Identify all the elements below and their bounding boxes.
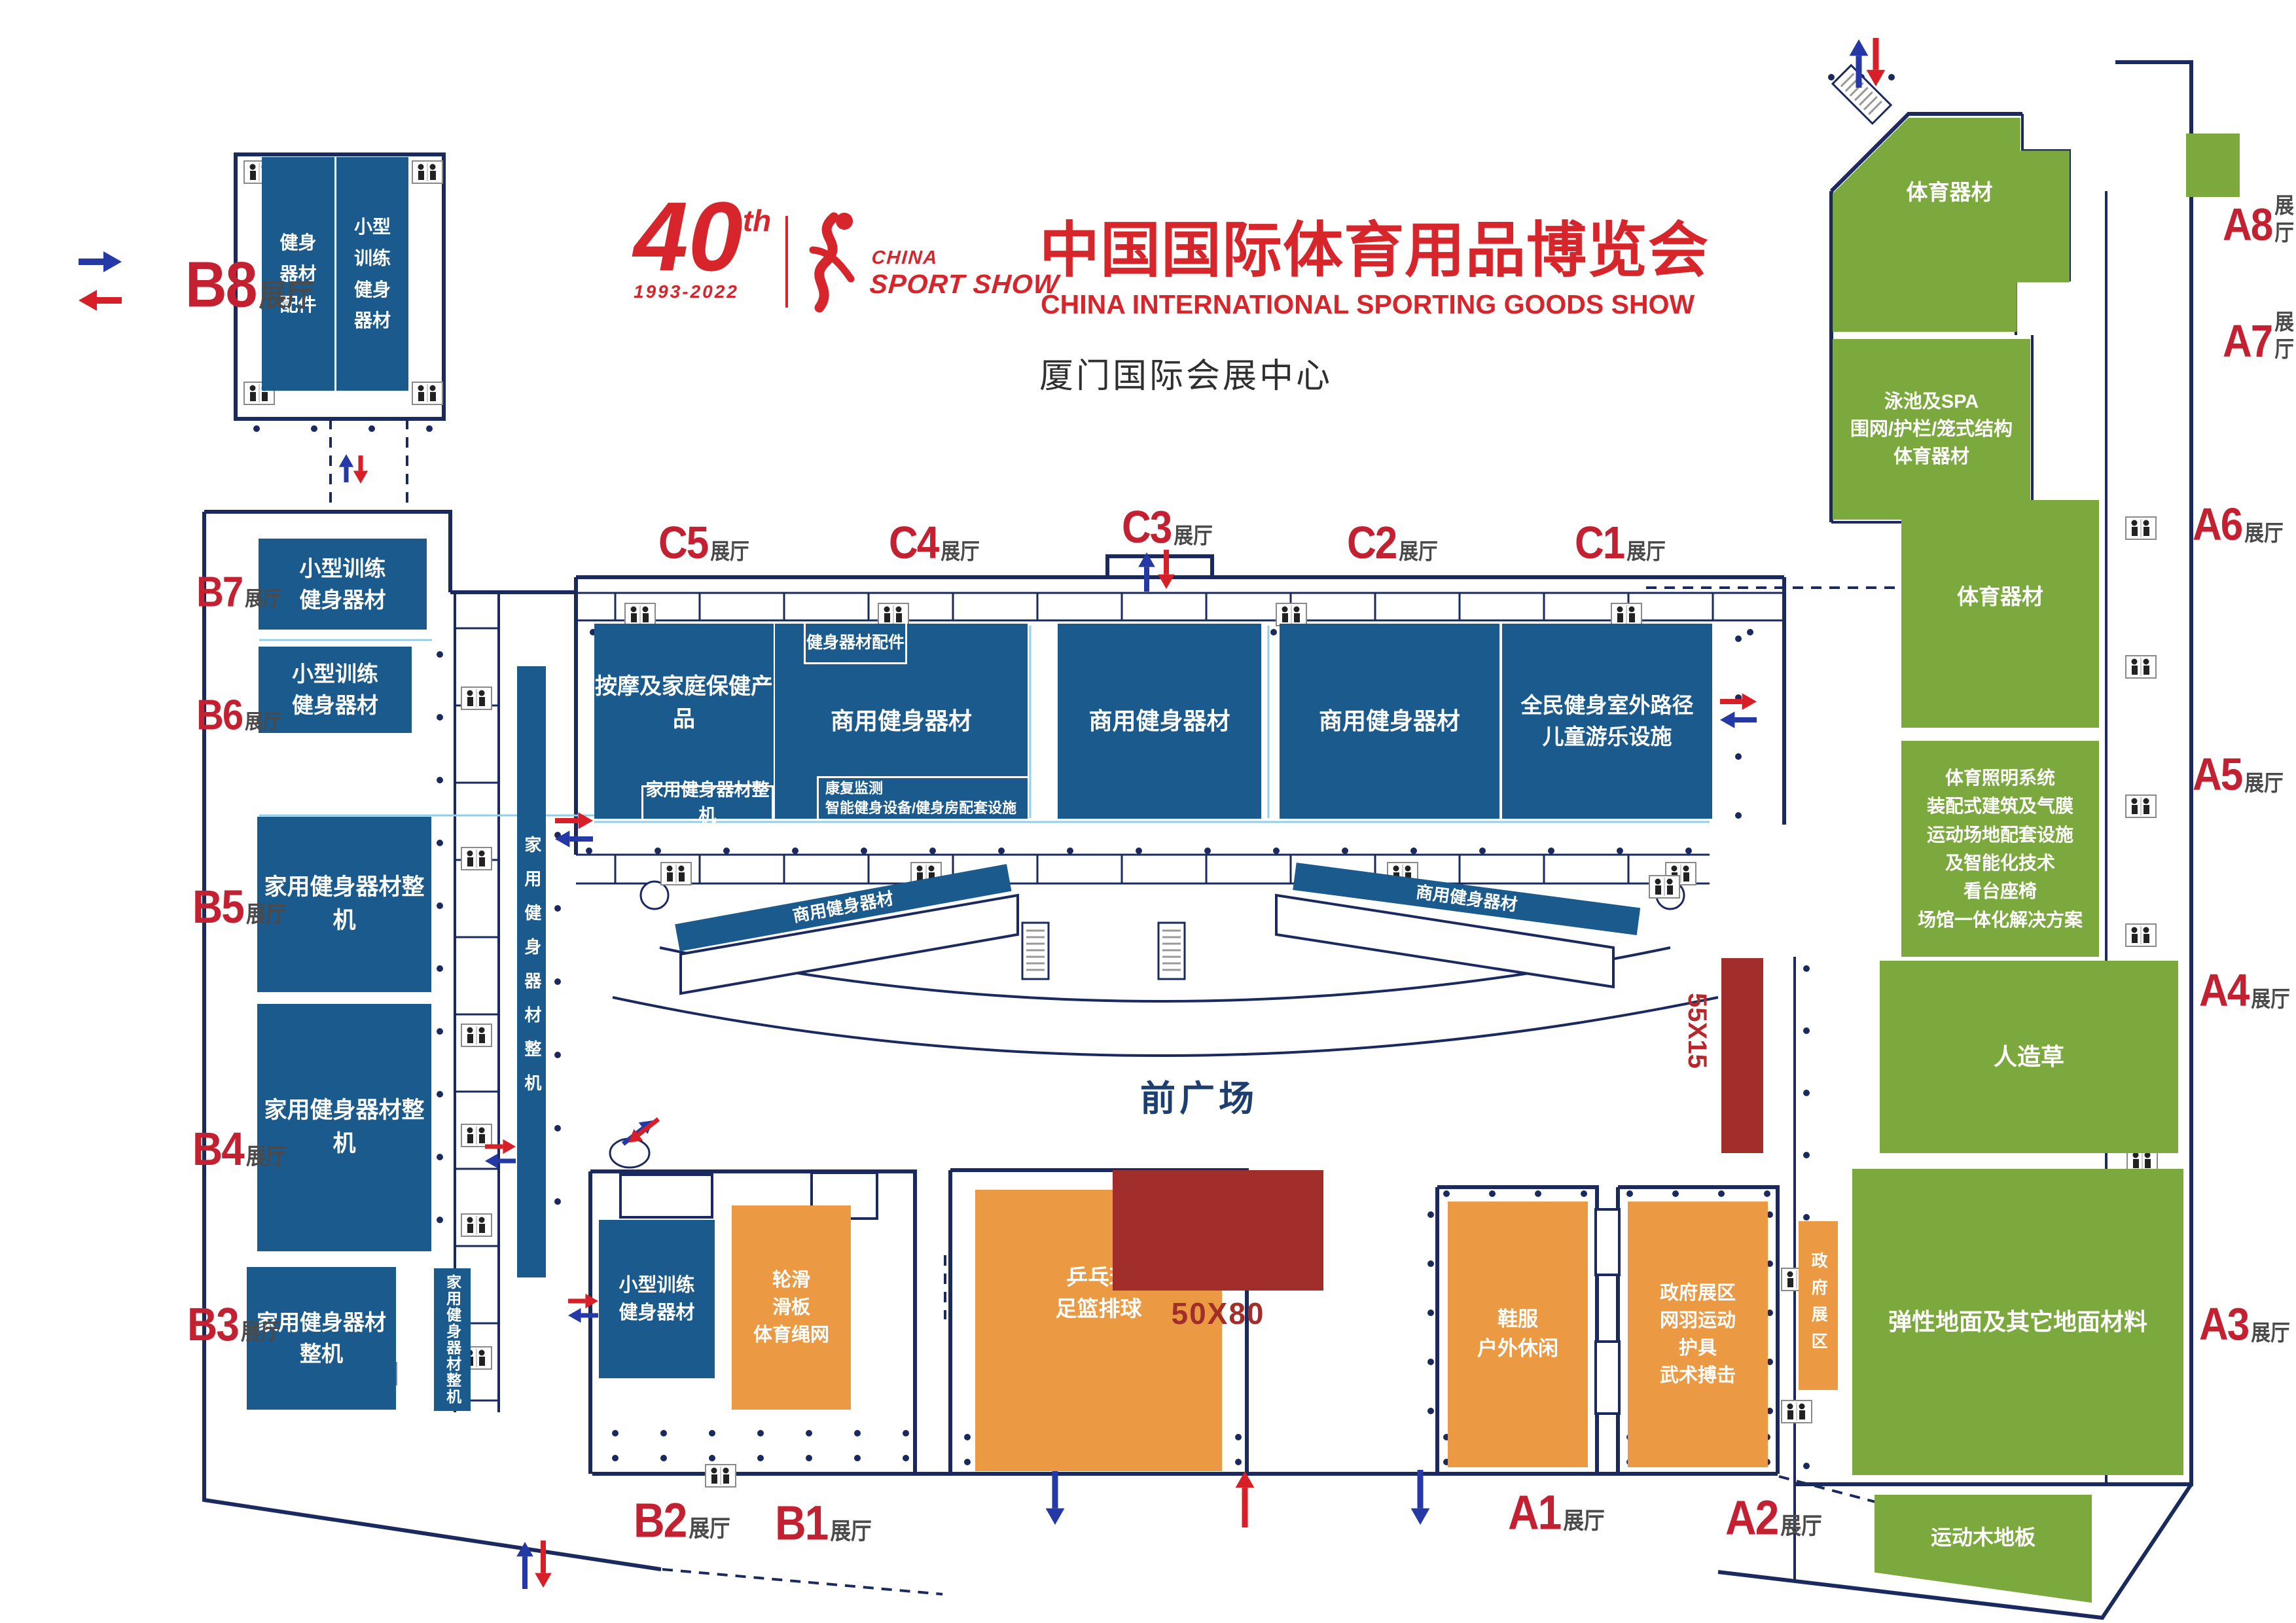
hall-label-c3: C3展厅 — [1122, 507, 1213, 550]
plan-line — [418, 392, 424, 401]
plan-line — [1282, 607, 1288, 613]
flow-arrow-head — [1850, 39, 1869, 56]
pillar-dot — [1735, 812, 1742, 819]
flow-arrow-head — [1720, 711, 1734, 728]
floor-plan-page: { "header": { "anniversary_number": "40"… — [0, 0, 2296, 1623]
pillar-dot — [1427, 1359, 1434, 1365]
plan-line — [1617, 613, 1623, 622]
pillar-dot — [554, 1052, 561, 1058]
zone-c1: 全民健身室外路径 儿童游乐设施 — [1502, 624, 1712, 819]
pillar-dot — [723, 847, 730, 854]
plan-line — [1405, 866, 1411, 872]
plan-line — [479, 1217, 485, 1223]
zone-c3: 商用健身器材 — [1058, 624, 1261, 819]
plan-line — [430, 385, 436, 391]
zone-b7: 小型训练 健身器材 — [259, 539, 427, 630]
plan-line — [479, 1350, 485, 1356]
plan-line — [430, 171, 436, 180]
hall-label-c2: C2展厅 — [1347, 522, 1438, 565]
plan-line — [884, 607, 890, 613]
pillar-dot — [554, 1198, 561, 1205]
pillar-dot — [1747, 629, 1753, 635]
zone-c5-inner: 家用健身器材整机 — [641, 785, 774, 819]
plan-line — [479, 851, 485, 857]
hall-label-c4: C4展厅 — [889, 522, 980, 565]
flow-arrow-head — [1158, 575, 1175, 589]
pillar-dot — [1803, 1463, 1810, 1469]
pillar-dot — [437, 902, 443, 909]
venue-name: 厦门国际会展中心 — [1039, 348, 1333, 397]
pillar-dot — [1718, 1190, 1725, 1197]
zone-b-strip-long: 家用健身器材整机 — [517, 666, 546, 1277]
pillar-dot — [426, 425, 433, 432]
plan-line — [929, 866, 935, 872]
plan-line — [467, 1128, 473, 1133]
plan-line — [479, 857, 485, 866]
pillar-dot — [998, 847, 1005, 854]
pillar-dot — [1803, 965, 1810, 972]
flow-arrow-head — [535, 1573, 552, 1588]
pillar-dot — [1342, 847, 1348, 854]
pillar-dot — [554, 1125, 561, 1132]
plan-line — [1667, 885, 1673, 895]
plan-line — [418, 385, 424, 391]
pillar-dot — [1479, 847, 1486, 854]
plan-line — [467, 690, 473, 696]
plan-line — [2144, 666, 2149, 675]
plan-line — [896, 613, 902, 622]
hall-label-suffix: 展厅 — [2251, 1319, 2290, 1347]
toilet-icon — [461, 687, 492, 709]
zone-a4: 人造草 — [1880, 961, 2178, 1153]
pillar-dot — [1581, 1190, 1587, 1197]
anniversary-number: 40 — [634, 181, 743, 291]
column-circle — [610, 1139, 649, 1168]
pillar-dot — [1427, 1408, 1434, 1414]
pillar-dot — [861, 847, 867, 854]
plan-line — [2132, 527, 2138, 536]
hall-label-suffix: 展厅 — [1626, 538, 1666, 565]
pillar-dot — [792, 847, 798, 854]
hall-label-a5: A5展厅 — [2193, 754, 2284, 797]
pillar-dot — [1427, 1211, 1434, 1218]
hall-label-suffix: 展厅 — [245, 710, 281, 736]
toilet-icon — [461, 847, 492, 870]
pillar-dot — [437, 1028, 443, 1035]
plan-line — [643, 613, 649, 622]
plan-line — [467, 697, 473, 706]
hall-label-suffix: 展厅 — [246, 1143, 286, 1171]
zone-b8-right: 小型 训练 健身 器材 — [336, 157, 408, 391]
plan-line — [2144, 659, 2149, 665]
toilet-icon — [1276, 603, 1306, 626]
zone-c2: 商用健身器材 — [1280, 624, 1499, 819]
plan-line — [2132, 666, 2138, 675]
pillar-dot — [437, 1091, 443, 1097]
anniversary-logo: 40th 1993-2022 — [634, 187, 771, 302]
hall-label-suffix: 展厅 — [830, 1517, 871, 1546]
zone-b6: 小型训练 健身器材 — [259, 647, 412, 733]
plan-line — [884, 613, 890, 622]
plan-line — [1787, 1404, 1793, 1410]
plan-line — [2144, 934, 2149, 943]
plan-line — [917, 866, 923, 872]
hall-label-suffix: 展厅 — [2244, 520, 2284, 547]
plan-line — [2132, 659, 2138, 665]
hall-label-suffix: 展厅 — [2244, 770, 2284, 797]
plan-line — [643, 607, 649, 613]
hall-label-b2: B2展厅 — [634, 1497, 730, 1543]
toilet-icon — [706, 1465, 736, 1487]
booth-55x15-label: 55X15 — [1683, 975, 1712, 1086]
plan-line — [2133, 1159, 2139, 1168]
toilet-icon — [2126, 795, 2156, 817]
flow-arrow-head — [1742, 693, 1757, 710]
zone-b2-blue: 小型训练 健身器材 — [599, 1220, 715, 1378]
zone-a6: 体育器材 — [1901, 466, 2099, 728]
plan-line — [479, 1034, 485, 1043]
plan-line — [479, 1357, 485, 1366]
pillar-dot — [437, 777, 443, 783]
hall-label-a1: A1展厅 — [1508, 1489, 1605, 1535]
pillar-dot — [929, 847, 936, 854]
pillar-dot — [1626, 1190, 1633, 1197]
hall-label-a3: A3展厅 — [2199, 1304, 2290, 1347]
hall-label-suffix: 展厅 — [2274, 192, 2296, 247]
pillar-dot — [1548, 847, 1554, 854]
pillar-dot — [806, 1455, 812, 1461]
hall-label-suffix: 展厅 — [1399, 538, 1438, 565]
plan-line — [679, 872, 685, 882]
hall-label-b7: B7展厅 — [196, 572, 281, 613]
pillar-dot — [437, 714, 443, 721]
flow-arrow-head — [485, 1154, 498, 1168]
plan-line — [467, 1134, 473, 1143]
plan-line — [418, 171, 424, 180]
toilet-icon — [1611, 603, 1641, 626]
pillar-dot — [1535, 1190, 1541, 1197]
plan-line — [2132, 934, 2138, 943]
zone-b-strip-short: 家用健身器材整机 — [434, 1268, 471, 1411]
pillar-dot — [1427, 1260, 1434, 1267]
flow-arrow-head — [568, 1308, 581, 1323]
pillar-dot — [437, 651, 443, 658]
plan-line — [1617, 607, 1623, 613]
toilet-icon — [461, 1024, 492, 1046]
logo-divider — [785, 216, 788, 308]
zone-a2-orange: 政府展区 网羽运动 护具 武术搏击 — [1628, 1202, 1768, 1467]
toilet-icon — [1782, 1400, 1812, 1423]
toilet-icon — [412, 161, 442, 183]
plan-line — [250, 164, 256, 170]
hall-label-suffix: 展厅 — [259, 277, 314, 315]
pillar-dot — [1235, 1459, 1242, 1465]
plan-line — [1799, 1404, 1805, 1410]
plan-line — [479, 690, 485, 696]
plan-line — [1393, 866, 1399, 872]
plan-line — [1655, 885, 1661, 895]
pillar-dot — [1067, 847, 1073, 854]
booth-50x80-label: 50X80 — [1113, 1296, 1323, 1331]
plan-line — [723, 1474, 729, 1484]
plan-line — [1294, 607, 1300, 613]
plan-line — [896, 607, 902, 613]
plan-line — [479, 1128, 485, 1133]
hall-label-a4: A4展厅 — [2199, 970, 2290, 1013]
plan-line — [1667, 879, 1673, 885]
zone-a1-orange: 鞋服 户外休闲 — [1448, 1202, 1588, 1467]
zone-b2-orange: 轮滑 滑板 体育绳网 — [732, 1205, 851, 1410]
pillar-dot — [612, 1430, 619, 1436]
pillar-dot — [1735, 753, 1742, 760]
toilet-icon — [412, 382, 442, 404]
plan-line — [1672, 866, 1677, 872]
plan-line — [723, 1468, 729, 1474]
plan-line — [479, 1134, 485, 1143]
escalator-icon — [1022, 923, 1049, 979]
zone-c4-bottom: 康复监测 智能健身设备/健身房配套设施 — [817, 776, 1028, 819]
pillar-dot — [1803, 1214, 1810, 1221]
hall-label-suffix: 展厅 — [241, 1319, 281, 1347]
toilet-icon — [2126, 517, 2156, 539]
plan-line — [467, 1027, 473, 1033]
pillar-dot — [1617, 847, 1623, 854]
toilet-icon — [2126, 924, 2156, 946]
hall-label-suffix: 展厅 — [2251, 986, 2290, 1013]
room-outline — [1596, 1209, 1619, 1275]
pillar-dot — [437, 1217, 443, 1223]
plan-line — [1282, 613, 1288, 622]
zone-a3: 弹性地面及其它地面材料 — [1852, 1169, 2183, 1475]
plan-line — [1683, 866, 1689, 872]
plan-line — [467, 1217, 473, 1223]
pillar-dot — [903, 1430, 909, 1436]
flow-arrow-head — [1046, 1508, 1065, 1525]
plaza-label: 前广场 — [1140, 1069, 1258, 1121]
pillar-dot — [964, 1434, 971, 1440]
hall-label-a2: A2展厅 — [1725, 1495, 1822, 1541]
pillar-dot — [554, 905, 561, 912]
plan-line — [1683, 872, 1689, 882]
hall-label-b8: B8展厅 — [185, 254, 314, 315]
pillar-dot — [757, 1430, 764, 1436]
hall-label-suffix: 展厅 — [1780, 1512, 1821, 1541]
page-title-cn: 中国国际体育用品博览会 — [1039, 202, 1709, 289]
plan-line — [667, 872, 673, 882]
pillar-dot — [655, 847, 661, 854]
plan-line — [1799, 1410, 1805, 1419]
pillar-dot — [1685, 847, 1692, 854]
pillar-dot — [1803, 1090, 1810, 1096]
plan-line — [1629, 607, 1635, 613]
escalator-icon — [1158, 923, 1185, 979]
plan-line — [2132, 798, 2138, 804]
pillar-dot — [709, 1430, 715, 1436]
pillar-dot — [586, 847, 592, 854]
flow-arrow-head — [1411, 1508, 1430, 1525]
hall-label-suffix: 展厅 — [2274, 309, 2296, 363]
plan-line — [1787, 1272, 1793, 1277]
page-title-en: CHINA INTERNATIONAL SPORTING GOODS SHOW — [1041, 289, 1695, 320]
brand-line1: CHINA — [870, 247, 1062, 269]
pillar-dot — [757, 1455, 764, 1461]
pillar-dot — [854, 1455, 861, 1461]
wall-dashed — [662, 1569, 942, 1594]
pillar-dot — [660, 1455, 667, 1461]
pillar-dot — [1888, 74, 1895, 80]
pillar-dot — [1672, 1190, 1679, 1197]
booth-55x15-block — [1721, 958, 1763, 1153]
pillar-dot — [437, 1154, 443, 1160]
plan-line — [2144, 798, 2149, 804]
pillar-dot — [1764, 1190, 1770, 1197]
pillar-dot — [1443, 1190, 1450, 1197]
hall-label-c5: C5展厅 — [658, 522, 749, 565]
sport-figure-icon — [800, 211, 865, 313]
pillar-dot — [311, 425, 317, 432]
hall-label-a7: A7展厅 — [2223, 309, 2296, 363]
plan-line — [250, 171, 256, 180]
hall-label-suffix: 展厅 — [689, 1514, 730, 1543]
wall — [613, 997, 1718, 1056]
hall-label-suffix: 展厅 — [245, 587, 281, 613]
plan-line — [631, 613, 637, 622]
plan-line — [2144, 520, 2149, 526]
pillar-dot — [368, 425, 375, 432]
pillar-dot — [437, 840, 443, 846]
brand-text: CHINA SPORT SHOW — [869, 247, 1062, 300]
hall-label-suffix: 展厅 — [710, 538, 749, 565]
pillar-dot — [964, 1459, 971, 1465]
pillar-dot — [1136, 847, 1142, 854]
hall-label-b4: B4展厅 — [192, 1127, 286, 1171]
pillar-dot — [660, 1430, 667, 1436]
plan-line — [2144, 805, 2149, 814]
plan-line — [2132, 805, 2138, 814]
toilet-icon — [625, 603, 655, 626]
hall-label-c1: C1展厅 — [1575, 522, 1666, 565]
plan-line — [1787, 1278, 1793, 1287]
hall-label-a6: A6展厅 — [2193, 504, 2284, 547]
pillar-dot — [709, 1455, 715, 1461]
hall-label-suffix: 展厅 — [941, 538, 980, 565]
room-outline — [620, 1175, 712, 1217]
zone-gov-strip: 政府展区 — [1799, 1221, 1838, 1390]
plan-line — [679, 866, 685, 872]
plan-line — [631, 607, 637, 613]
hall-label-suffix: 展厅 — [1174, 522, 1213, 550]
pillar-dot — [1803, 1152, 1810, 1158]
flow-arrow-head — [79, 290, 97, 311]
zone-a8-annex — [2186, 134, 2240, 197]
plan-line — [667, 866, 673, 872]
pillar-dot — [554, 978, 561, 985]
pillar-dot — [437, 965, 443, 972]
hall-label-b6: B6展厅 — [196, 695, 281, 736]
plan-line — [418, 164, 424, 170]
pillar-dot — [1235, 1434, 1242, 1440]
toilet-icon — [1649, 876, 1679, 898]
pillar-dot — [806, 1430, 812, 1436]
booth-50x80-block — [1113, 1170, 1323, 1291]
pillar-dot — [1803, 1027, 1810, 1034]
pillar-dot — [1735, 635, 1742, 642]
pillar-dot — [1270, 629, 1277, 635]
anniversary-years: 1993-2022 — [634, 281, 771, 302]
pillar-dot — [903, 1455, 909, 1461]
plan-line — [2132, 520, 2138, 526]
pillar-dot — [1828, 74, 1835, 80]
hall-label-suffix: 展厅 — [246, 901, 286, 929]
wall — [1107, 556, 1212, 577]
zone-c4-top: 健身器材配件 — [804, 624, 907, 664]
toilet-icon — [2126, 656, 2156, 678]
pillar-dot — [612, 1455, 619, 1461]
plan-line — [1629, 613, 1635, 622]
hall-label-a8: A8展厅 — [2223, 192, 2296, 247]
hall-label-b1: B1展厅 — [775, 1500, 872, 1546]
plan-line — [430, 392, 436, 401]
pillar-dot — [1204, 847, 1211, 854]
room-outline — [1596, 1342, 1619, 1414]
plan-line — [2132, 927, 2138, 933]
pillar-dot — [1489, 1190, 1496, 1197]
toilet-icon — [461, 1214, 492, 1236]
flow-arrow-head — [103, 251, 122, 272]
plan-line — [479, 697, 485, 706]
plan-line — [430, 164, 436, 170]
plan-line — [2144, 527, 2149, 536]
pillar-dot — [1410, 847, 1417, 854]
pillar-dot — [253, 425, 260, 432]
plan-line — [711, 1474, 717, 1484]
plan-line — [467, 1224, 473, 1233]
plan-line — [262, 392, 268, 401]
plan-line — [479, 1027, 485, 1033]
hall-label-b3: B3展厅 — [187, 1302, 281, 1347]
plan-line — [2145, 1159, 2151, 1168]
toilet-icon — [878, 603, 908, 626]
toilet-icon — [661, 863, 691, 885]
plan-line — [2144, 927, 2149, 933]
flow-arrow-head — [339, 454, 353, 467]
toilet-icon — [461, 1124, 492, 1147]
hall-label-suffix: 展厅 — [1563, 1507, 1604, 1535]
plan-line — [250, 385, 256, 391]
plan-line — [1787, 1410, 1793, 1419]
column-circle — [641, 882, 668, 909]
anniversary-sup: th — [743, 204, 771, 238]
hall-label-b5: B5展厅 — [192, 885, 286, 929]
flow-arrow-head — [503, 1139, 516, 1154]
plan-line — [711, 1468, 717, 1474]
plan-line — [467, 1034, 473, 1043]
pillar-dot — [854, 1430, 861, 1436]
plan-line — [250, 392, 256, 401]
plan-line — [1294, 613, 1300, 622]
plan-line — [479, 1224, 485, 1233]
zone-a5: 体育照明系统 装配式建筑及气膜 运动场地配套设施 及智能化技术 看台座椅 场馆一… — [1901, 741, 2099, 957]
flow-arrow-head — [353, 471, 368, 484]
plan-line — [467, 857, 473, 866]
brand-line2: SPORT SHOW — [869, 269, 1060, 300]
plan-line — [467, 851, 473, 857]
plan-line — [1655, 879, 1661, 885]
pillar-dot — [1273, 847, 1280, 854]
pillar-dot — [1427, 1310, 1434, 1316]
